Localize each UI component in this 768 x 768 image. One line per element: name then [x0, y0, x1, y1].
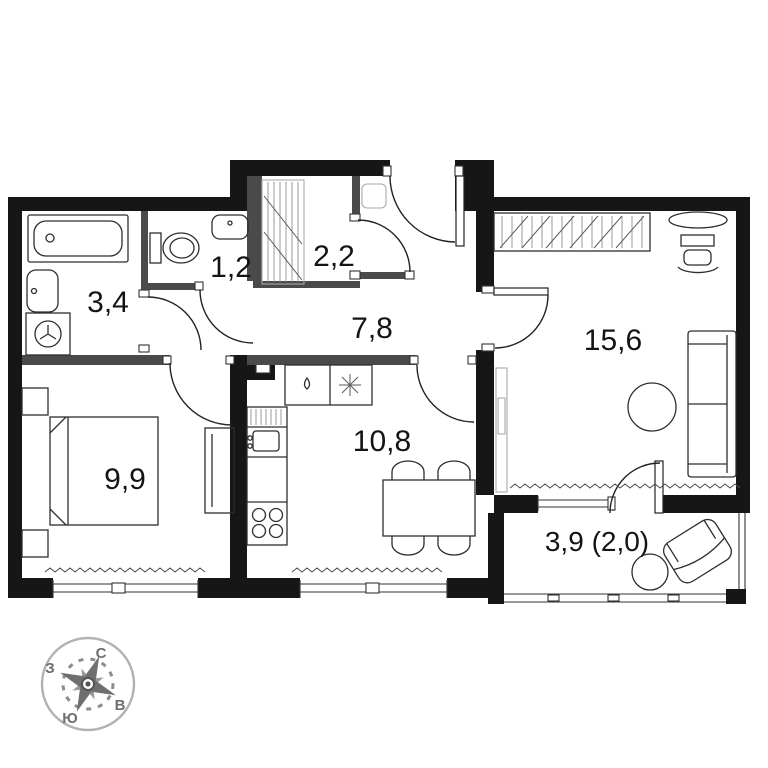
wc-sink: [212, 215, 248, 239]
living-room-door: [482, 286, 548, 351]
compass-west-label: З: [45, 660, 54, 677]
closet-wardrobe: [262, 180, 304, 284]
tv-stand: [496, 368, 507, 492]
compass-east-label: В: [115, 697, 126, 714]
bathroom-sink: [27, 270, 58, 312]
balcony-table: [632, 554, 668, 590]
balcony-armchair: [660, 516, 735, 587]
bedroom-window: [53, 580, 198, 598]
bedroom-door: [163, 356, 234, 425]
compass-south-label: Ю: [62, 710, 77, 727]
closet-door: [350, 214, 414, 279]
floor-plan-canvas: 3,4 1,2 2,2 7,8 15,6 9,9 10,8 3,9 (2,0) …: [0, 0, 768, 768]
room-label-living-room: 15,6: [584, 324, 642, 357]
room-label-closet: 2,2: [313, 240, 355, 273]
balcony-glazing-right: [738, 513, 747, 589]
living-balcony-window: [538, 496, 613, 511]
room-label-balcony: 3,9 (2,0): [545, 526, 649, 557]
toilet: [150, 233, 199, 263]
desk-chair: [678, 250, 718, 273]
dresser: [205, 428, 234, 513]
nightstand-top: [22, 388, 48, 415]
dining-table: [383, 461, 475, 555]
round-table: [628, 383, 676, 431]
desk: [669, 212, 727, 246]
kitchen-furniture: [247, 365, 475, 555]
sofa: [688, 331, 736, 477]
kitchen-left-counter: [247, 407, 287, 545]
bathroom-fixtures: [26, 215, 128, 355]
kitchen-door: [410, 356, 476, 422]
compass-rose: С З В Ю: [42, 638, 134, 730]
room-label-hallway: 7,8: [351, 312, 393, 345]
room-label-wc: 1,2: [210, 251, 252, 284]
balcony-door: [608, 461, 663, 513]
floor-plan-page: 3,4 1,2 2,2 7,8 15,6 9,9 10,8 3,9 (2,0) …: [0, 0, 768, 768]
compass-north-label: С: [96, 645, 107, 662]
room-label-kitchen: 10,8: [353, 425, 411, 458]
wc-door: [195, 282, 253, 343]
kitchen-top-counter: [285, 365, 372, 405]
room-label-bedroom: 9,9: [104, 463, 146, 496]
washing-machine: [26, 313, 70, 355]
room-label-bathroom: 3,4: [87, 286, 129, 319]
bathroom-door: [139, 290, 201, 352]
nightstand-bottom: [22, 530, 48, 557]
kitchen-window: [300, 580, 447, 598]
bathtub: [28, 215, 128, 262]
entrance-door: [383, 166, 464, 246]
balcony-glazing-bottom: [504, 592, 726, 604]
entrance-doormat: [362, 184, 386, 208]
living-wardrobe: [494, 213, 650, 251]
